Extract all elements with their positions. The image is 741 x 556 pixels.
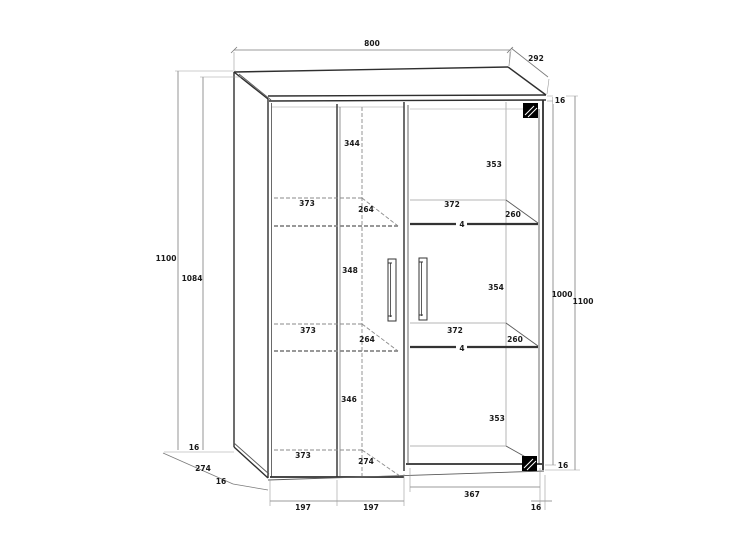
- drawing-line: [268, 95, 546, 96]
- dim-label-glass-door-width: 367: [464, 490, 480, 499]
- dim-label-total-height-right: 1100: [573, 297, 594, 306]
- dim-label-right-shelf1-t: 4: [459, 220, 464, 229]
- section-divider: [404, 102, 408, 471]
- dim-label-right-shelf1-w: 372: [444, 200, 460, 209]
- drawing-line: [523, 103, 538, 118]
- drawing-line: [268, 471, 544, 480]
- dim-label-bottom-16-right: 16: [558, 461, 568, 470]
- dim-label-right-shelf2-d: 260: [507, 335, 523, 344]
- dim-label-door2-width: 197: [363, 503, 379, 512]
- drawing-line: [419, 258, 427, 320]
- drawing-line: [547, 79, 549, 94]
- dim-label-right-comp1: 353: [486, 160, 502, 169]
- dim-label-top-16: 16: [555, 96, 565, 105]
- dim-top-depth: 292: [509, 48, 549, 94]
- drawing-line: [239, 74, 271, 100]
- left-door-divider: [337, 104, 340, 477]
- cabinet-technical-drawing: 800 292: [0, 0, 741, 556]
- dim-label-top-depth: 292: [528, 54, 544, 63]
- drawing-line: [233, 484, 268, 490]
- drawing-line: [522, 456, 537, 471]
- dim-label-side-16: 16: [216, 477, 226, 486]
- hinge-icon-top: [523, 103, 538, 118]
- dim-label-right-comp2: 354: [488, 283, 504, 292]
- drawing-line: [269, 100, 546, 101]
- dim-right-heights: 16 1000 1100 16: [545, 95, 593, 470]
- drawing-line: [388, 259, 396, 321]
- dim-label-left-shelf2-d: 264: [359, 335, 375, 344]
- dim-label-carcass-height: 1084: [182, 274, 203, 283]
- dim-label-side-16-right: 16: [531, 503, 541, 512]
- dim-bottom-widths: 367 197 197 16: [270, 468, 552, 512]
- cabinet-top-face: [234, 67, 546, 101]
- drawing-line: [234, 72, 268, 99]
- dim-top-width: 800: [231, 39, 513, 70]
- dim-label-inner-height: 1000: [552, 290, 573, 299]
- drawing-line: [234, 67, 508, 72]
- dim-label-left-shelf1-d: 264: [358, 205, 374, 214]
- glass-section-interior: [410, 102, 538, 464]
- door-handle-left: [388, 259, 396, 321]
- dim-label-right-shelf2-w: 372: [447, 326, 463, 335]
- dim-label-left-shelf1-w: 373: [299, 199, 315, 208]
- door-handle-right: [419, 258, 427, 320]
- drawing-line: [234, 447, 268, 478]
- drawing-line: [234, 443, 269, 474]
- dim-label-left-bottom-d: 274: [358, 457, 374, 466]
- dim-label-left-comp3: 346: [341, 395, 357, 404]
- dim-label-right-shelf2-t: 4: [459, 344, 464, 353]
- dim-label-right-comp3: 353: [489, 414, 505, 423]
- dim-label-left-shelf2-w: 373: [300, 326, 316, 335]
- right-section-labels: 353 372 260 4 354 372 260 4 353: [444, 160, 523, 423]
- dim-label-top-width: 800: [364, 39, 380, 48]
- dim-label-right-shelf1-d: 260: [505, 210, 521, 219]
- dim-label-left-comp2: 348: [342, 266, 358, 275]
- dim-label-door1-width: 197: [295, 503, 311, 512]
- cabinet-left-side-panel: [234, 72, 272, 478]
- hinge-icon-bottom: [522, 456, 537, 471]
- dim-label-bottom-depth-274: 274: [195, 464, 211, 473]
- dim-label-total-height-left: 1100: [156, 254, 177, 263]
- drawing-canvas: 800 292: [0, 0, 741, 556]
- left-section-labels: 344 373 264 348 373 264 346 373 274: [295, 139, 375, 466]
- dim-bottom-left: 16 274 16: [163, 443, 268, 490]
- dim-label-left-comp1: 344: [344, 139, 360, 148]
- dim-label-bottom-board-16: 16: [189, 443, 199, 452]
- dim-left-heights: 1100 1084: [156, 71, 242, 452]
- dim-label-left-bottom-w: 373: [295, 451, 311, 460]
